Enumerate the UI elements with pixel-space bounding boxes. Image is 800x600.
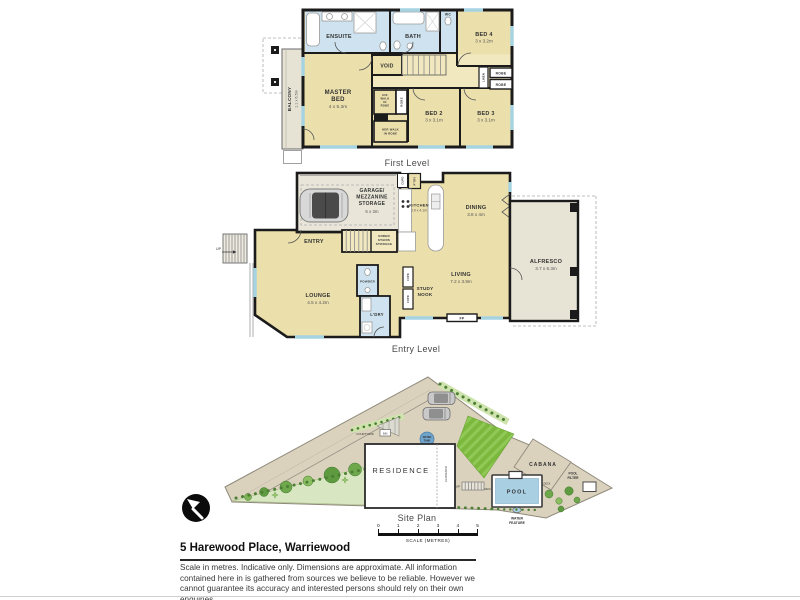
- car-icon: [300, 189, 348, 222]
- svg-text:ROBE: ROBE: [381, 104, 390, 108]
- lounge-label: LOUNGE: [305, 293, 330, 299]
- basin-icon: [365, 287, 370, 292]
- bed2-label: BED 2: [425, 111, 442, 117]
- svg-text:2.9 x 4.1m: 2.9 x 4.1m: [411, 209, 427, 213]
- first-level-plan: BALCONY 1.1 x 6.5m VOID HIS WALK IN ROBE…: [250, 5, 520, 173]
- up-label: UP: [216, 247, 222, 251]
- site-plan: COURTYARD BIN WATER TANK RESIDENCE ALFRE…: [140, 370, 620, 530]
- entry-label: ENTRY: [304, 239, 324, 245]
- disclaimer: Scale in metres. Indicative only. Dimens…: [180, 563, 500, 600]
- her-walk-in-robe: HER WALK IN ROBE: [374, 121, 407, 142]
- master-label-1: MASTER: [325, 90, 352, 96]
- svg-text:MEZZANINE: MEZZANINE: [356, 195, 388, 201]
- property-address: 5 Harewood Place, Warriewood: [180, 542, 350, 554]
- svg-text:CUPD: CUPD: [407, 295, 410, 303]
- svg-text:3.7 x 6.3m: 3.7 x 6.3m: [535, 266, 557, 271]
- scale-tickmarks: [378, 529, 478, 533]
- wall-stub: [374, 114, 388, 121]
- scale-label: SCALE (METRES): [378, 538, 478, 543]
- north-arrow-icon: [182, 494, 210, 522]
- deck-label: DECK: [544, 483, 551, 486]
- svg-text:TANK: TANK: [424, 439, 431, 442]
- internal-stairs: UNDER STAIRS STORAGE: [342, 230, 397, 252]
- garage: GARAGE/ MEZZANINE STORAGE 6 x 3m: [297, 173, 400, 232]
- svg-text:FP: FP: [459, 317, 464, 321]
- disclaimer-line-3: cannot guarantee its accuracy and intere…: [180, 584, 500, 600]
- address-divider: [180, 559, 476, 561]
- page-bottom-border: [0, 596, 800, 597]
- dining-label: DINING: [466, 205, 487, 211]
- car-icon: [423, 408, 450, 421]
- bed4-label: BED 4: [475, 32, 493, 38]
- linen-cupboard: LINEN: [479, 67, 488, 88]
- scale-bar-line: [378, 533, 478, 536]
- balcony-label: BALCONY: [287, 87, 292, 111]
- svg-text:FILTER: FILTER: [568, 476, 580, 480]
- disclaimer-line-1: Scale in metres. Indicative only. Dimens…: [180, 563, 500, 574]
- car-icon: [428, 392, 455, 405]
- svg-text:STORAGE: STORAGE: [359, 201, 386, 207]
- stairs: [402, 55, 446, 75]
- pantry: P'TRY: [409, 174, 421, 189]
- bed3-dims: 3 x 3.1m: [477, 118, 495, 123]
- disclaimer-line-2: contained here in is gathered from sourc…: [180, 574, 500, 585]
- svg-text:HIS: HIS: [382, 93, 387, 97]
- site-plan-title: Site Plan: [398, 513, 437, 523]
- svg-text:POWDER: POWDER: [360, 280, 376, 284]
- balcony: BALCONY 1.1 x 6.5m: [282, 49, 303, 164]
- cupboard: CUPD: [398, 174, 408, 188]
- bed3-label: BED 3: [477, 111, 494, 117]
- pool: POOL: [492, 472, 542, 508]
- svg-text:ROBE: ROBE: [496, 71, 507, 75]
- robe-bed4-b: ROBE: [490, 80, 512, 90]
- svg-text:IN ROBE: IN ROBE: [384, 132, 397, 136]
- toilet-icon: [380, 42, 386, 50]
- svg-text:ROBE: ROBE: [496, 83, 507, 87]
- void: VOID: [372, 55, 402, 75]
- first-level-title: First Level: [385, 158, 430, 168]
- svg-text:CABANA: CABANA: [529, 462, 557, 468]
- bed2-dims: 3 x 3.1m: [425, 118, 443, 123]
- living-dims: 7.2 x 3.9m: [450, 279, 472, 284]
- laundry: L'DRY: [360, 296, 390, 337]
- his-walk-in-robe: HIS WALK IN ROBE: [374, 90, 396, 114]
- svg-text:WALK: WALK: [381, 97, 390, 101]
- svg-text:POOL: POOL: [507, 490, 527, 496]
- svg-text:6 x 3m: 6 x 3m: [365, 209, 379, 214]
- svg-text:GARAGE/: GARAGE/: [359, 188, 384, 194]
- toilet-icon: [394, 41, 400, 49]
- svg-text:ROBE: ROBE: [400, 97, 404, 107]
- void-label: VOID: [380, 64, 393, 70]
- robe-bed4-a: ROBE: [490, 68, 512, 78]
- entry-level-plan: GARAGE/ MEZZANINE STORAGE 6 x 3m CUPD P'…: [200, 168, 600, 360]
- fireplace: FP: [447, 314, 477, 322]
- courtyard-label: COURTYARD: [356, 432, 373, 436]
- deck-label: DECK: [484, 488, 491, 491]
- wc-label: WC: [445, 13, 451, 17]
- washer-icon: [362, 322, 372, 333]
- bathtub-icon: [393, 12, 424, 24]
- svg-text:IN: IN: [383, 100, 386, 104]
- master-label-2: BED: [331, 97, 345, 103]
- entry-level-title: Entry Level: [392, 344, 440, 354]
- svg-text:STUDY: STUDY: [417, 286, 434, 291]
- residence: RESIDENCE ALFRESCO: [365, 444, 455, 508]
- svg-text:RESIDENCE: RESIDENCE: [372, 466, 429, 475]
- balcony-dims: 1.1 x 6.5m: [295, 90, 299, 108]
- svg-text:BIN: BIN: [383, 431, 387, 435]
- scale-bar: 0 1 2 3 4 5 SCALE (METRES): [378, 524, 478, 543]
- svg-text:POOL: POOL: [568, 472, 577, 476]
- bath-label: BATH: [405, 34, 421, 40]
- svg-text:STORAGE: STORAGE: [376, 242, 393, 246]
- master-dims: 4 x 5.3m: [329, 104, 347, 110]
- lounge-dims: 4.5 x 4.2m: [307, 300, 329, 305]
- svg-text:ALFRESCO: ALFRESCO: [530, 259, 563, 265]
- bin: BIN: [380, 430, 391, 437]
- svg-text:KITCHEN: KITCHEN: [409, 203, 429, 208]
- dining-dims: 3.8 x 4m: [467, 212, 485, 217]
- toilet-icon: [445, 17, 451, 25]
- robe-vertical: ROBE: [396, 90, 407, 114]
- svg-text:UP: UP: [456, 485, 460, 489]
- svg-text:CUPD: CUPD: [407, 273, 410, 281]
- bathtub-icon: [307, 13, 320, 46]
- living-label: LIVING: [451, 272, 471, 278]
- svg-text:P'TRY: P'TRY: [413, 177, 417, 186]
- svg-text:L'DRY: L'DRY: [370, 312, 384, 317]
- bed4-dims: 3 x 3.2m: [475, 39, 493, 44]
- toilet-icon: [365, 268, 371, 275]
- svg-text:ALFRESCO: ALFRESCO: [444, 465, 448, 482]
- floorplan-page: BALCONY 1.1 x 6.5m VOID HIS WALK IN ROBE…: [0, 0, 800, 600]
- svg-text:NOOK: NOOK: [418, 292, 433, 297]
- svg-text:LINEN: LINEN: [482, 73, 486, 82]
- ensuite-label: ENSUITE: [326, 34, 352, 40]
- powder-room: POWDER: [357, 265, 378, 296]
- svg-text:CUPD: CUPD: [401, 176, 405, 184]
- alfresco: ALFRESCO 3.7 x 6.3m: [510, 196, 596, 326]
- external-stairs: UP: [216, 234, 253, 337]
- svg-text:FEATURE: FEATURE: [509, 521, 525, 525]
